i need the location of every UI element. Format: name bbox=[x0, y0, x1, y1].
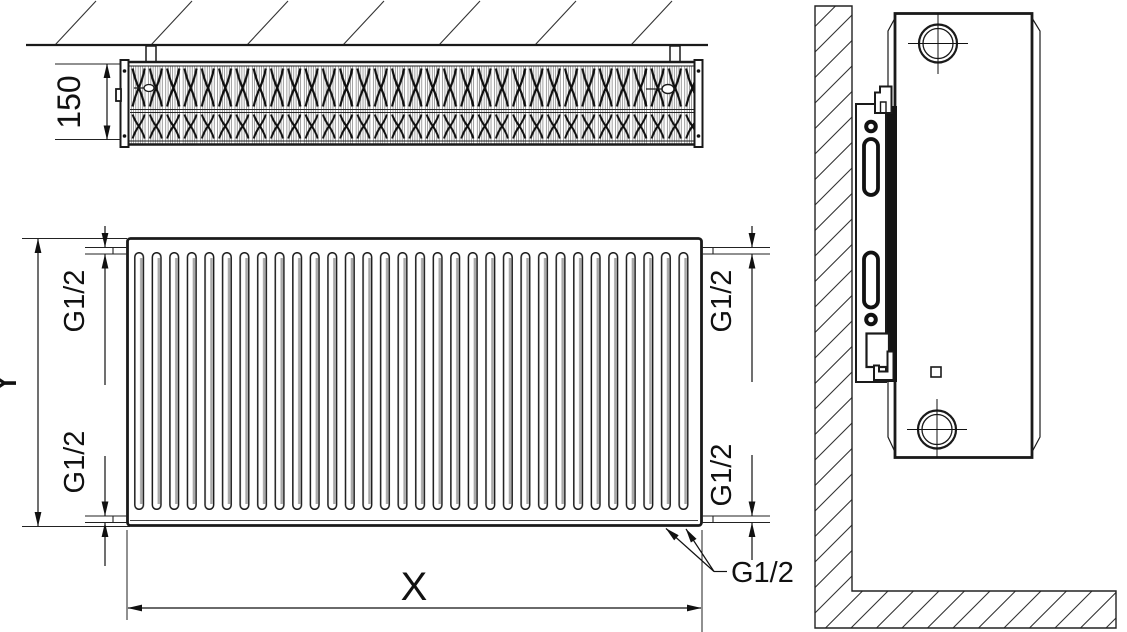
front-view: Y X G1/2 G1/2 G1/2 bbox=[0, 226, 794, 632]
panel-grooves bbox=[133, 252, 695, 510]
end-cap-left bbox=[121, 60, 129, 147]
convector-fins bbox=[130, 66, 694, 144]
bracket-hole-bottom bbox=[866, 315, 876, 325]
radiator-technical-drawing: 150 Y bbox=[0, 0, 1127, 632]
dimension-thread-bottom-left: G1/2 bbox=[59, 431, 105, 566]
bracket-slot-top bbox=[864, 139, 878, 195]
side-plug-left bbox=[116, 89, 121, 101]
thread-label-bottom-right: G1/2 bbox=[706, 444, 738, 507]
radiator-side-body bbox=[887, 13, 1041, 458]
mounting-tab-right bbox=[670, 46, 680, 62]
ceiling-hatch bbox=[55, 1, 672, 45]
bracket-hole-top bbox=[866, 122, 876, 132]
drain-square bbox=[931, 367, 941, 377]
dimension-width-x: X bbox=[127, 530, 702, 632]
height-dimension-label: Y bbox=[0, 370, 25, 397]
top-view: 150 bbox=[26, 1, 708, 147]
thread-label-bottom-left: G1/2 bbox=[59, 431, 91, 494]
width-dimension-label: X bbox=[401, 565, 428, 609]
bracket-slot-bottom bbox=[864, 253, 878, 308]
side-view bbox=[815, 6, 1116, 628]
thread-label-bottom-callout: G1/2 bbox=[731, 557, 794, 589]
radiator-technical-drawing-page: 150 Y bbox=[0, 0, 1127, 632]
thread-label-top-left: G1/2 bbox=[59, 270, 91, 333]
radiator-top-body bbox=[116, 60, 703, 147]
mounting-tab-left bbox=[146, 46, 156, 62]
depth-dimension-label: 150 bbox=[51, 75, 87, 128]
thread-bottom-callout: G1/2 bbox=[666, 529, 794, 590]
dimension-thread-top-left: G1/2 bbox=[59, 226, 105, 385]
dimension-thread-bottom-right: G1/2 bbox=[706, 444, 752, 560]
bracket-clip-housing bbox=[867, 334, 890, 368]
dimension-depth-150: 150 bbox=[51, 64, 121, 140]
bracket-top-clip bbox=[875, 87, 892, 114]
end-cap-right bbox=[695, 60, 703, 147]
thread-label-top-right: G1/2 bbox=[706, 270, 738, 333]
